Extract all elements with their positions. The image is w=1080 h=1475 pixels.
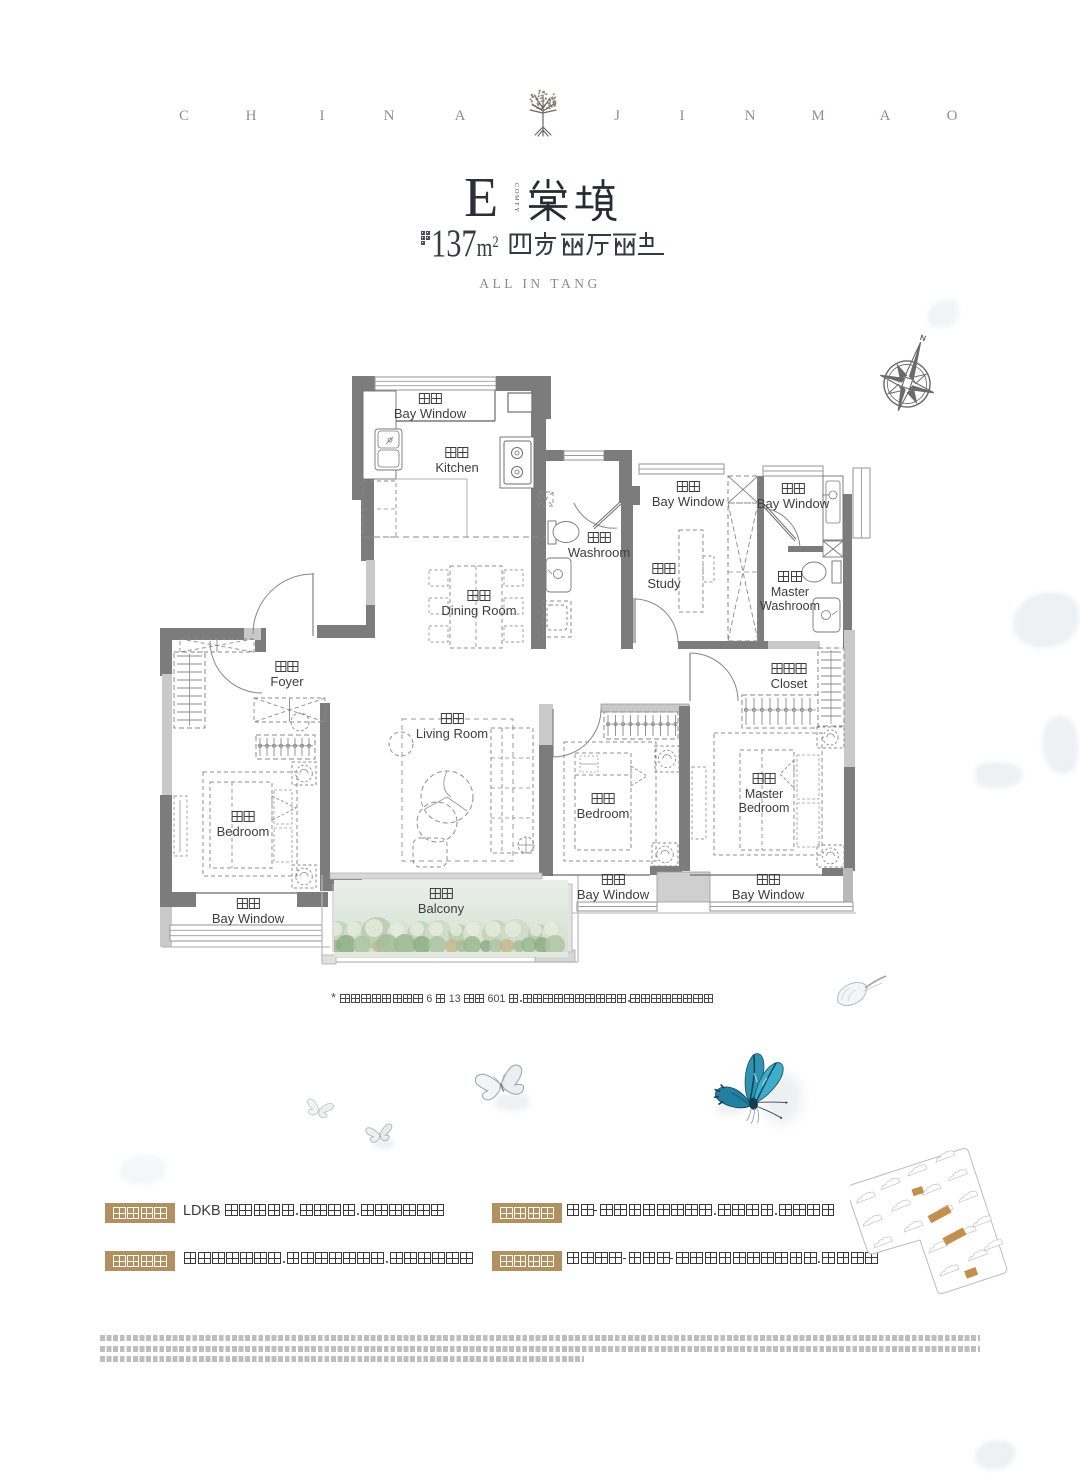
svg-text:N: N [919,333,927,343]
